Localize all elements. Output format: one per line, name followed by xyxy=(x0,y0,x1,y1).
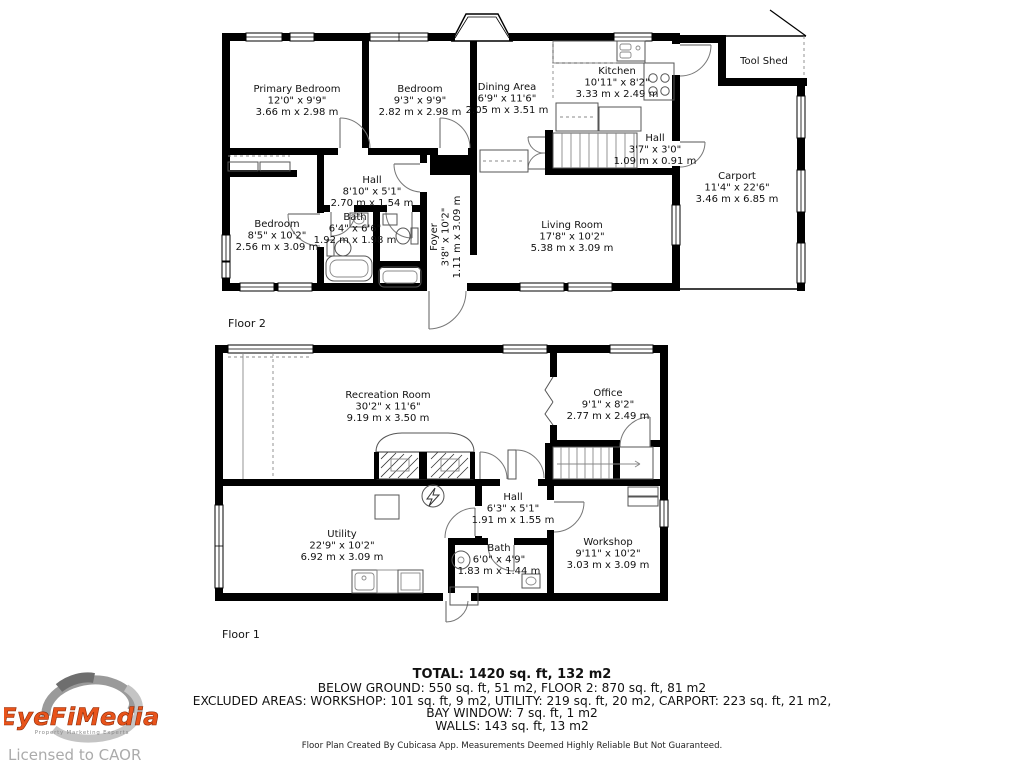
furnace-icon xyxy=(422,485,444,507)
svg-text:Dining Area: Dining Area xyxy=(478,82,536,93)
room-label-carport: Carport 11'4" x 22'6" 3.46 m x 6.85 m xyxy=(696,171,779,205)
svg-text:Primary Bedroom: Primary Bedroom xyxy=(253,84,340,95)
svg-text:Office: Office xyxy=(593,388,622,399)
svg-text:Foyer: Foyer xyxy=(429,222,440,251)
floor-plan-drawing: Primary Bedroom 12'0" x 9'9" 3.66 m x 2.… xyxy=(0,0,1024,666)
svg-text:2.77 m x 2.49 m: 2.77 m x 2.49 m xyxy=(567,411,650,422)
utility-box xyxy=(375,495,399,519)
wc-sink xyxy=(383,214,397,225)
room-label-office: Office 9'1" x 8'2" 2.77 m x 2.49 m xyxy=(567,388,650,422)
exterior-door-arc xyxy=(446,601,468,622)
room-label-recreation: Recreation Room 30'2" x 11'6" 9.19 m x 3… xyxy=(345,390,430,424)
svg-text:10'11" x 8'2": 10'11" x 8'2" xyxy=(584,78,649,89)
burner xyxy=(649,74,657,82)
carport-opening xyxy=(797,96,805,138)
window xyxy=(568,283,612,291)
svg-text:1.83 m x 1.44 m: 1.83 m x 1.44 m xyxy=(458,566,541,577)
window xyxy=(503,345,547,353)
window xyxy=(520,283,564,291)
window xyxy=(228,345,313,353)
svg-text:Bath: Bath xyxy=(343,212,366,223)
carport-opening xyxy=(797,170,805,212)
dryer xyxy=(398,570,423,593)
room-label-tool-shed: Tool Shed xyxy=(739,56,788,67)
window xyxy=(672,205,680,245)
room-label-hall-f1: Hall 6'3" x 5'1" 1.91 m x 1.55 m xyxy=(472,492,555,526)
office-angled-opening xyxy=(545,377,553,425)
svg-text:1.91 m x 1.55 m: 1.91 m x 1.55 m xyxy=(472,515,555,526)
burner xyxy=(661,87,669,95)
svg-text:Hall: Hall xyxy=(362,175,381,186)
svg-text:1.92 m x 1.98 m: 1.92 m x 1.98 m xyxy=(314,235,397,246)
svg-text:Workshop: Workshop xyxy=(583,537,632,548)
bolt-icon xyxy=(427,488,439,506)
logo-graphic: EyeFiMedia Property Marketing Experts xyxy=(4,672,234,744)
closet-strip xyxy=(228,156,290,171)
window xyxy=(290,33,314,41)
room-label-living-room: Living Room 17'8" x 10'2" 5.38 m x 3.09 … xyxy=(531,220,614,254)
floor2-plan: Primary Bedroom 12'0" x 9'9" 3.66 m x 2.… xyxy=(222,10,807,330)
floor1-label: Floor 1 xyxy=(222,628,260,641)
window xyxy=(246,33,282,41)
window xyxy=(278,283,312,291)
hearth-curve xyxy=(376,433,474,452)
svg-text:2.70 m x 1.54 m: 2.70 m x 1.54 m xyxy=(331,198,414,209)
burner xyxy=(661,74,669,82)
svg-text:3'8" x 10'2": 3'8" x 10'2" xyxy=(441,208,452,267)
floor1-plan: Recreation Room 30'2" x 11'6" 9.19 m x 3… xyxy=(215,345,668,641)
svg-text:9.19 m x 3.50 m: 9.19 m x 3.50 m xyxy=(347,413,430,424)
logo-tagline: Property Marketing Experts xyxy=(35,730,129,736)
svg-text:Hall: Hall xyxy=(503,492,522,503)
svg-text:3'7" x 3'0": 3'7" x 3'0" xyxy=(629,145,681,156)
room-label-kitchen: Kitchen 10'11" x 8'2" 3.33 m x 2.49 m xyxy=(576,66,659,100)
washer xyxy=(352,570,377,593)
floor-plan-page: Primary Bedroom 12'0" x 9'9" 3.66 m x 2.… xyxy=(0,0,1024,768)
svg-text:Tool Shed: Tool Shed xyxy=(739,56,788,67)
room-label-hall-main: Hall 8'10" x 5'1" 2.70 m x 1.54 m xyxy=(331,175,414,209)
svg-text:30'2" x 11'6": 30'2" x 11'6" xyxy=(355,402,420,413)
license-text: Licensed to CAOR xyxy=(8,746,141,764)
room-label-utility: Utility 22'9" x 10'2" 6.92 m x 3.09 m xyxy=(301,529,384,563)
window xyxy=(222,262,230,278)
svg-text:17'8" x 10'2": 17'8" x 10'2" xyxy=(539,232,604,243)
kitchen-counter xyxy=(553,41,645,63)
svg-text:2.05 m x 3.51 m: 2.05 m x 3.51 m xyxy=(466,105,549,116)
room-label-bedroom-lower: Bedroom 8'5" x 10'2" 2.56 m x 3.09 m xyxy=(236,219,319,253)
shelf xyxy=(628,497,658,506)
shelf xyxy=(628,487,658,496)
svg-text:Utility: Utility xyxy=(327,529,356,540)
svg-text:6.92 m x 3.09 m: 6.92 m x 3.09 m xyxy=(301,552,384,563)
window xyxy=(240,283,274,291)
svg-text:Hall: Hall xyxy=(645,133,664,144)
svg-text:Carport: Carport xyxy=(718,171,756,182)
svg-text:Bedroom: Bedroom xyxy=(254,219,299,230)
carport-opening xyxy=(797,243,805,283)
window xyxy=(222,235,230,261)
svg-text:2.56 m x 3.09 m: 2.56 m x 3.09 m xyxy=(236,242,319,253)
eyefimedia-logo: EyeFiMedia Property Marketing Experts xyxy=(4,672,234,748)
window xyxy=(660,500,668,527)
svg-text:9'1" x 8'2": 9'1" x 8'2" xyxy=(582,400,634,411)
svg-text:6'4" x 6'6": 6'4" x 6'6" xyxy=(329,224,381,235)
room-label-workshop: Workshop 9'11" x 10'2" 3.03 m x 3.09 m xyxy=(567,537,650,571)
room-label-bath-f2: Bath 6'4" x 6'6" 1.92 m x 1.98 m xyxy=(314,212,397,246)
bay-window xyxy=(446,14,518,41)
closet-door xyxy=(228,162,258,171)
cabinet xyxy=(599,107,641,131)
svg-text:3.66 m x 2.98 m: 3.66 m x 2.98 m xyxy=(256,107,339,118)
svg-text:6'9" x 11'6": 6'9" x 11'6" xyxy=(478,94,537,105)
door-leaf-rect xyxy=(508,450,516,479)
floor1-stairs xyxy=(553,447,653,479)
shed-roof-line xyxy=(770,10,806,36)
closet-door xyxy=(260,162,290,171)
svg-text:3.33 m x 2.49 m: 3.33 m x 2.49 m xyxy=(576,89,659,100)
svg-text:Recreation Room: Recreation Room xyxy=(345,390,430,401)
appliance-box xyxy=(377,570,398,593)
room-label-foyer: Foyer 3'8" x 10'2" 1.11 m x 3.09 m xyxy=(429,196,463,279)
fireplace xyxy=(374,433,475,479)
window xyxy=(610,345,653,353)
svg-text:9'11" x 10'2": 9'11" x 10'2" xyxy=(575,549,640,560)
room-label-bedroom-top: Bedroom 9'3" x 9'9" 2.82 m x 2.98 m xyxy=(379,84,462,118)
floor2-label: Floor 2 xyxy=(228,317,266,330)
svg-text:11'4" x 22'6": 11'4" x 22'6" xyxy=(704,183,769,194)
room-label-dining-area: Dining Area 6'9" x 11'6" 2.05 m x 3.51 m xyxy=(466,82,549,116)
svg-text:Bedroom: Bedroom xyxy=(397,84,442,95)
window xyxy=(215,505,223,588)
svg-text:3.03 m x 3.09 m: 3.03 m x 3.09 m xyxy=(567,560,650,571)
utility-fixtures xyxy=(352,485,444,593)
svg-text:3.46 m x 6.85 m: 3.46 m x 6.85 m xyxy=(696,194,779,205)
svg-text:Living Room: Living Room xyxy=(541,220,602,231)
svg-text:9'3" x 9'9": 9'3" x 9'9" xyxy=(394,96,446,107)
svg-text:Bath: Bath xyxy=(487,543,510,554)
svg-text:1.11 m x 3.09 m: 1.11 m x 3.09 m xyxy=(452,196,463,279)
svg-text:12'0" x 9'9": 12'0" x 9'9" xyxy=(268,96,327,107)
front-door-arc xyxy=(429,291,466,329)
svg-text:2.82 m x 2.98 m: 2.82 m x 2.98 m xyxy=(379,107,462,118)
svg-text:8'10" x 5'1": 8'10" x 5'1" xyxy=(343,187,402,198)
svg-text:6'0" x 4'9": 6'0" x 4'9" xyxy=(473,555,525,566)
window xyxy=(370,33,428,41)
svg-text:5.38 m x 3.09 m: 5.38 m x 3.09 m xyxy=(531,243,614,254)
svg-text:6'3" x 5'1": 6'3" x 5'1" xyxy=(487,504,539,515)
room-label-hall-small: Hall 3'7" x 3'0" 1.09 m x 0.91 m xyxy=(614,133,697,167)
svg-text:Kitchen: Kitchen xyxy=(598,66,636,77)
svg-text:1.09 m x 0.91 m: 1.09 m x 0.91 m xyxy=(614,156,697,167)
svg-text:22'9" x 10'2": 22'9" x 10'2" xyxy=(309,541,374,552)
workshop-fixtures xyxy=(628,487,658,506)
window xyxy=(614,33,652,41)
svg-text:8'5" x 10'2": 8'5" x 10'2" xyxy=(248,231,307,242)
logo-text: EyeFiMedia xyxy=(4,703,160,731)
room-label-primary-bedroom: Primary Bedroom 12'0" x 9'9" 3.66 m x 2.… xyxy=(253,84,340,118)
